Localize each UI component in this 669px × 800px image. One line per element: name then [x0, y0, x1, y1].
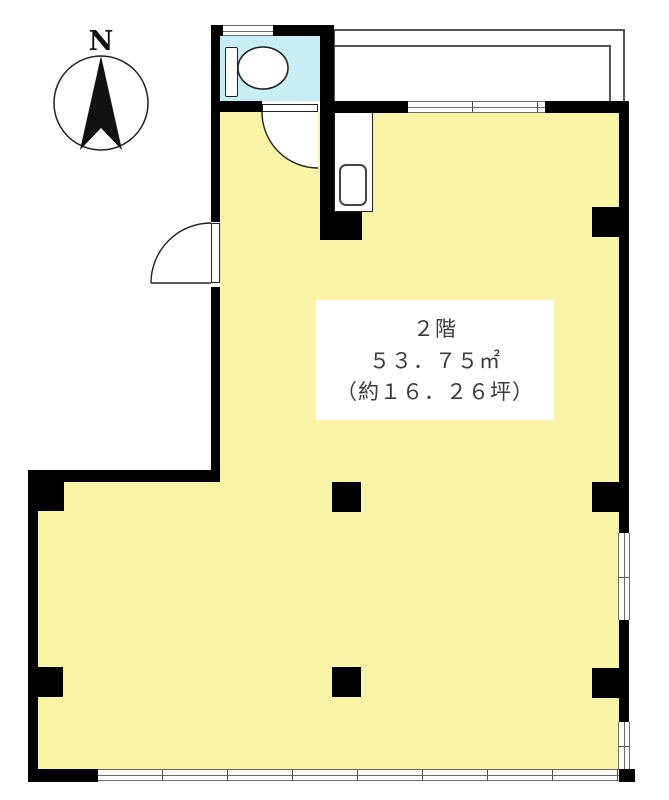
pilaster-right-lower [592, 668, 619, 698]
wall-left-lower [28, 482, 38, 782]
sink-icon [339, 164, 367, 206]
pilaster-right-upper [592, 207, 619, 237]
wall-left-upper [211, 25, 220, 222]
column-center-lower [332, 667, 361, 697]
main-room-area [220, 112, 619, 769]
wall-bottom-left [28, 769, 98, 782]
area-floor-label: ２階 [316, 314, 554, 346]
compass-needle-icon [80, 56, 122, 150]
toilet-door-leaf [262, 104, 318, 112]
balcony-railing-inner [333, 45, 611, 103]
wall-toilet-bottom [211, 101, 262, 112]
area-label-box: ２階 ５３．７５㎡ （約１６．２６坪） [316, 300, 554, 420]
wall-kitchenette [320, 112, 334, 240]
pilaster-right-mid [592, 482, 619, 512]
wall-right-upper [619, 101, 629, 533]
wall-toilet-right [320, 25, 334, 112]
pilaster-left [38, 667, 63, 697]
compass-icon [54, 56, 148, 150]
window-top-main [408, 101, 545, 113]
main-room-area-left-wing [38, 482, 220, 769]
window-right-lower [618, 722, 630, 769]
floor-plan: ２階 ５３．７５㎡ （約１６．２６坪） N [0, 0, 669, 800]
window-bottom [98, 769, 619, 781]
north-label: N [89, 26, 114, 57]
area-sqm-label: ５３．７５㎡ [316, 346, 554, 378]
wall-corner-bottom-right [619, 769, 635, 782]
window-right-upper [618, 533, 630, 620]
wall-left-mid [211, 287, 220, 482]
toilet-tank [225, 47, 238, 97]
area-tsubo-label: （約１６．２６坪） [316, 377, 554, 409]
entrance-door-arc-icon [151, 223, 211, 283]
column-center-upper [332, 482, 361, 512]
entrance-door-leaf [211, 223, 220, 283]
window-toilet-top [223, 25, 273, 36]
wall-kitchenette-end [334, 212, 362, 240]
wall-right-mid [619, 620, 629, 722]
entrance-door-swing-fill [151, 223, 211, 283]
